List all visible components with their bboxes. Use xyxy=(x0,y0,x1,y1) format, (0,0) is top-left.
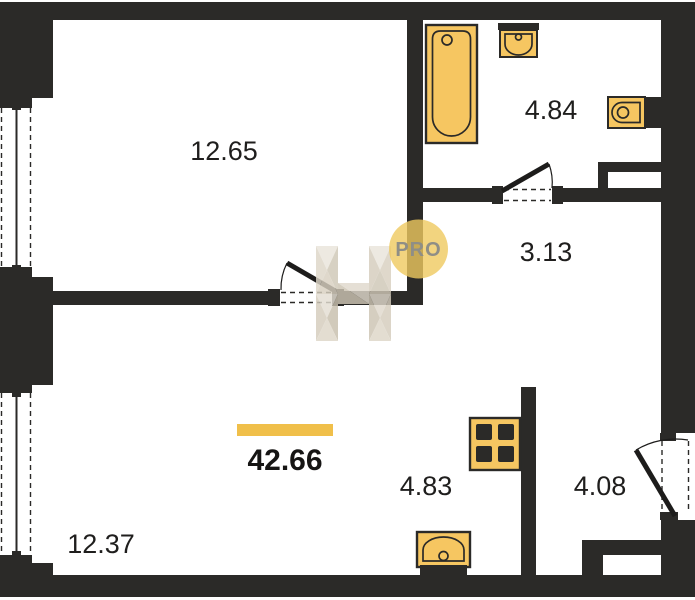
door-leaf xyxy=(636,450,675,516)
kitchen-sink xyxy=(417,532,470,575)
wall-living-bedroom-left xyxy=(53,291,270,305)
door-jamb xyxy=(552,186,563,204)
stove-burner xyxy=(476,424,492,440)
wall-bottom xyxy=(0,575,695,597)
door-swing-arc xyxy=(281,263,287,290)
door-jamb xyxy=(268,289,280,306)
label-kitchen-area: 4.83 xyxy=(400,471,453,501)
wall-kitchen-entry xyxy=(521,387,536,577)
total-area-underline xyxy=(237,424,333,436)
wall-bathroom-hall-right xyxy=(562,188,695,202)
label-bedroom-area: 12.37 xyxy=(67,529,135,559)
stove xyxy=(470,418,520,470)
window-living xyxy=(0,98,32,277)
kitchen-sink-base xyxy=(420,565,467,575)
bathroom-sink xyxy=(498,23,539,57)
toilet-tank xyxy=(645,97,661,128)
label-bathroom-area: 4.84 xyxy=(525,95,578,125)
door-bathroom xyxy=(502,164,552,201)
wall-top xyxy=(0,2,695,20)
label-total-area: 42.66 xyxy=(247,444,322,477)
label-entry-area: 4.08 xyxy=(574,471,627,501)
wall-left-pier-top xyxy=(0,2,53,98)
duct-niche2-side xyxy=(582,555,603,577)
label-living-area: 12.65 xyxy=(190,136,258,166)
sink-counter xyxy=(498,23,539,30)
toilet xyxy=(608,97,661,128)
floor-plan: PRO 12.65 4.84 3.13 4.83 4.08 12.37 42.6… xyxy=(0,0,695,600)
duct-niche2-top xyxy=(582,540,661,555)
stove-burner xyxy=(498,446,514,462)
watermark-pro-badge: PRO xyxy=(389,220,448,279)
stove-burner xyxy=(476,446,492,462)
bathtub xyxy=(426,25,477,143)
window-bedroom xyxy=(0,385,32,563)
wall-right-top xyxy=(661,2,695,433)
pro-badge-text: PRO xyxy=(395,239,441,261)
stove-burner xyxy=(498,424,514,440)
wall-right-bottom xyxy=(661,520,695,597)
duct-niche-side xyxy=(598,162,608,188)
door-leaf xyxy=(502,164,549,191)
room-labels: 12.65 4.84 3.13 4.83 4.08 12.37 42.66 xyxy=(67,95,626,559)
label-hall-area: 3.13 xyxy=(520,237,573,267)
door-swing-arc xyxy=(549,164,552,188)
wall-bathroom-hall-left xyxy=(423,188,493,202)
entry-door xyxy=(636,439,689,516)
wall-left-pier-middle xyxy=(0,277,53,385)
floor-plan-drawing: PRO 12.65 4.84 3.13 4.83 4.08 12.37 42.6… xyxy=(0,0,695,600)
watermark-h-logo xyxy=(316,246,391,341)
